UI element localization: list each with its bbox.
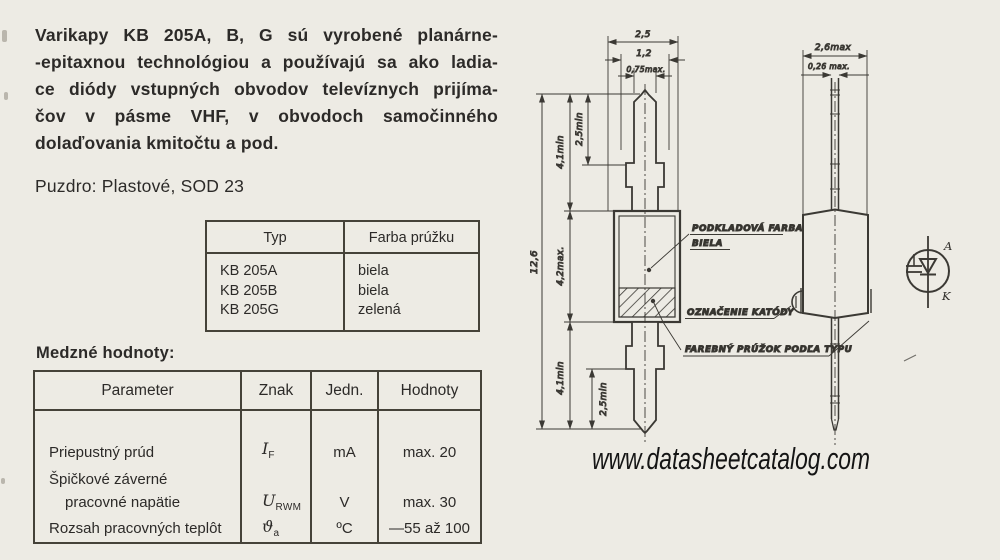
param-cell: Priepustný prúd [35, 411, 240, 468]
color-cell: biela [358, 262, 478, 282]
limits-header-hodnoty: Hodnoty [377, 372, 480, 409]
datasheet-page: Varikapy KB 205A, B, G sú vyrobené planá… [0, 0, 1000, 560]
value-cell-empty [379, 468, 480, 490]
dim-2-6max: 2,6max [815, 43, 852, 53]
side-view: 2,6max 0,26 max. [792, 43, 916, 445]
intro-line: -epitaxnou technológiou a používajú sa a… [35, 49, 498, 76]
type-cell: KB 205A [220, 262, 343, 282]
limits-table: Parameter Znak Jedn. Hodnoty Priepustný … [33, 370, 482, 544]
type-table-header-typ: Typ [207, 222, 343, 252]
type-table-col-typ: KB 205A KB 205B KB 205G [207, 254, 343, 330]
type-table-body: KB 205A KB 205B KB 205G biela biela zele… [207, 254, 478, 330]
symbol-cell: ϑa [242, 514, 310, 542]
front-view: 2,5 1,2 0,75max. 12,6 4,1min 2,5min 4,2m… [530, 30, 685, 442]
leader-dot [647, 268, 650, 271]
limits-col-hodnoty: max. 20 max. 30 —55 až 100 [377, 411, 480, 542]
color-stripe-band [619, 288, 675, 317]
unit-cell-empty [312, 468, 377, 490]
color-cell: biela [358, 282, 478, 302]
unit-cell: mA [312, 411, 377, 468]
limits-header-znak: Znak [240, 372, 310, 409]
intro-line: ce diódy vstupných obvodov televíznych p… [35, 76, 498, 103]
dim-0-26max: 0,26 max. [808, 62, 850, 71]
watermark: www.datasheetcatalog.com [592, 441, 870, 476]
dim-2-5: 2,5 [635, 30, 651, 40]
label-base-paint-biela: BIELA [692, 239, 723, 249]
value-cell: max. 20 [379, 411, 480, 468]
side-body-outline [803, 210, 868, 319]
symbol-cell: IF [242, 411, 310, 468]
type-table-header: Typ Farba prúžku [207, 222, 478, 254]
limits-col-jedn: mA V ºC [310, 411, 377, 542]
limits-table-body: Priepustný prúd Špičkové záverné pracovn… [35, 411, 480, 542]
label-color-stripe: FAREBNÝ PRÚŽOK PODĽA TYPU [685, 343, 852, 355]
value-cell: max. 30 [379, 490, 480, 514]
dim-0-75max: 0,75max. [626, 65, 665, 74]
limits-col-znak: IF URWM ϑa [240, 411, 310, 542]
value-cell: —55 až 100 [379, 514, 480, 542]
color-cell: zelená [358, 301, 478, 321]
dim-1-2: 1,2 [636, 49, 652, 59]
scan-smudge [4, 92, 8, 100]
intro-line: Varikapy KB 205A, B, G sú vyrobené planá… [35, 22, 498, 49]
param-cell: pracovné napätie [35, 490, 240, 514]
anode-label: A [943, 239, 952, 253]
param-cell: Špičkové záverné [35, 468, 240, 490]
type-cell: KB 205G [220, 301, 343, 321]
label-base-paint: PODKLADOVÁ FARBA [692, 222, 803, 234]
dim-4-1min-bottom: 4,1min [556, 361, 566, 395]
scan-smudge [2, 30, 7, 42]
dim-4-2max: 4,2max. [556, 246, 566, 286]
limits-header-jedn: Jedn. [310, 372, 377, 409]
cathode-label: K [941, 289, 952, 303]
type-table: Typ Farba prúžku KB 205A KB 205B KB 205G… [205, 220, 480, 332]
intro-line: čov v pásme VHF, v obvodoch samočinného [35, 103, 498, 130]
limits-title: Medzné hodnoty: [36, 344, 175, 363]
dim-4-1min-top: 4,1min [556, 135, 566, 169]
scan-mark [904, 355, 916, 361]
symbol-cell-empty [242, 468, 310, 490]
param-cell: Rozsah pracovných teplôt [35, 514, 240, 542]
type-table-col-farba: biela biela zelená [343, 254, 478, 330]
label-cathode-mark: OZNAČENIE KATÓDY [687, 306, 795, 318]
limits-col-parameter: Priepustný prúd Špičkové záverné pracovn… [35, 411, 240, 542]
limits-header-parameter: Parameter [35, 372, 240, 409]
scan-smudge [1, 478, 5, 484]
dim-2-5min-top: 2,5min [575, 112, 585, 146]
diode-symbol: A K [906, 236, 952, 308]
unit-cell: V [312, 490, 377, 514]
limits-table-header: Parameter Znak Jedn. Hodnoty [35, 372, 480, 411]
dim-2-5min-bottom: 2,5min [599, 382, 609, 416]
type-cell: KB 205B [220, 282, 343, 302]
unit-cell: ºC [312, 514, 377, 542]
package-outline-drawing: 2,5 1,2 0,75max. 12,6 4,1min 2,5min 4,2m… [530, 0, 1000, 480]
intro-paragraph: Varikapy KB 205A, B, G sú vyrobené planá… [35, 22, 498, 157]
dim-12-6: 12,6 [530, 250, 540, 274]
symbol-cell: URWM [242, 490, 310, 514]
package-line: Puzdro: Plastové, SOD 23 [35, 176, 244, 197]
intro-line: dolaďovania kmitočtu a pod. [35, 130, 498, 157]
type-table-header-farba: Farba prúžku [343, 222, 478, 252]
